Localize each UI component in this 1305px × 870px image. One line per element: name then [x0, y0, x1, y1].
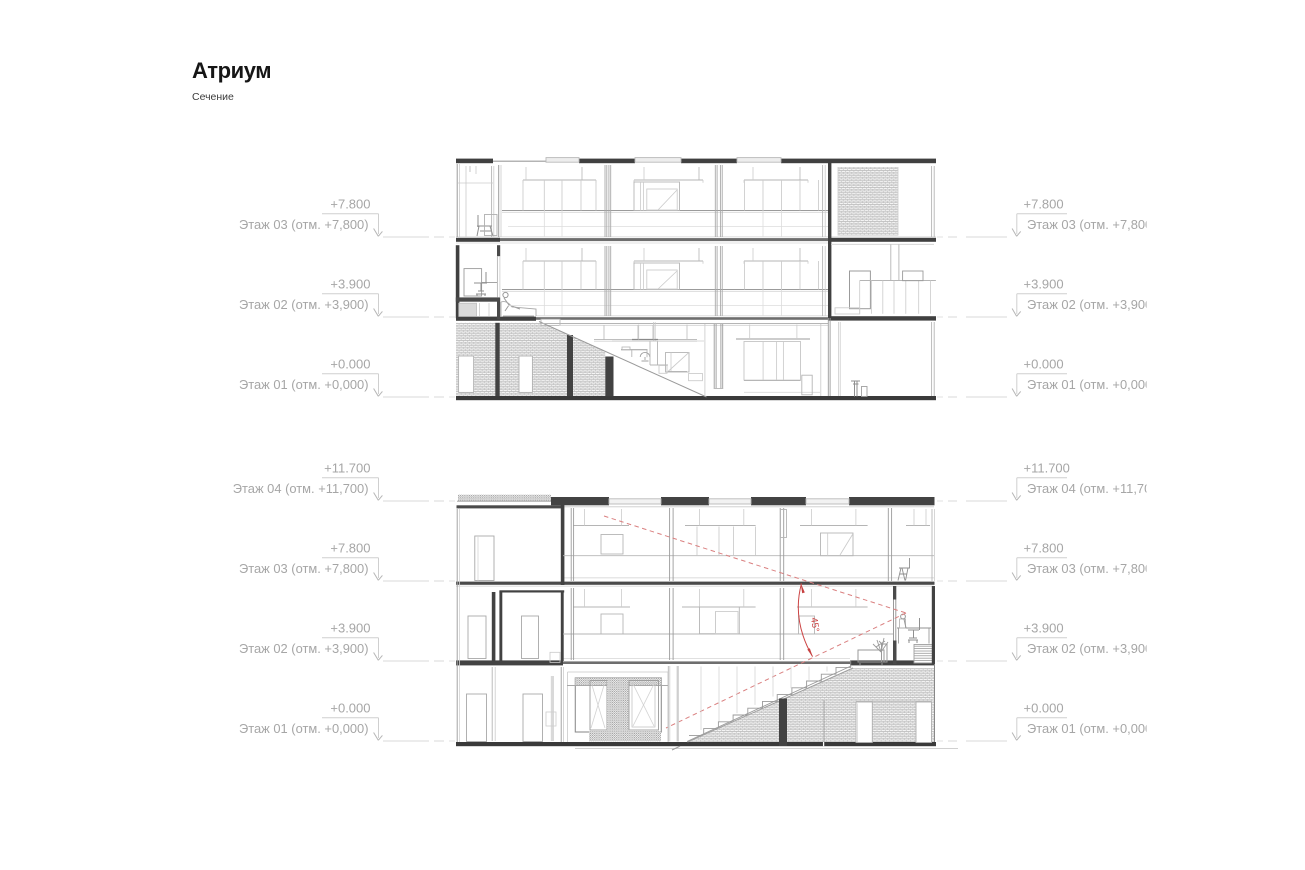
svg-text:+11.700: +11.700	[324, 461, 370, 476]
svg-text:Этаж 01 (отм. +0,000): Этаж 01 (отм. +0,000)	[239, 721, 369, 736]
svg-text:+0.000: +0.000	[1024, 701, 1064, 716]
svg-text:Этаж 03 (отм. +7,800): Этаж 03 (отм. +7,800)	[1027, 561, 1157, 576]
svg-text:+7.800: +7.800	[330, 541, 370, 556]
svg-text:Этаж 03 (отм. +7,800): Этаж 03 (отм. +7,800)	[239, 217, 369, 232]
svg-text:45°: 45°	[808, 617, 821, 633]
svg-text:+11.700: +11.700	[1024, 461, 1070, 476]
svg-text:Этаж 02 (отм. +3,900): Этаж 02 (отм. +3,900)	[1027, 297, 1157, 312]
svg-text:Этаж 01 (отм. +0,000): Этаж 01 (отм. +0,000)	[1027, 377, 1157, 392]
svg-text:+7.800: +7.800	[1024, 197, 1064, 212]
svg-text:Этаж 02 (отм. +3,900): Этаж 02 (отм. +3,900)	[1027, 641, 1157, 656]
svg-text:+0.000: +0.000	[1024, 357, 1064, 372]
svg-text:+3.900: +3.900	[1024, 277, 1064, 292]
svg-text:+0.000: +0.000	[330, 357, 370, 372]
svg-text:Этаж 03 (отм. +7,800): Этаж 03 (отм. +7,800)	[239, 561, 369, 576]
svg-text:+3.900: +3.900	[1024, 621, 1064, 636]
svg-text:+3.900: +3.900	[330, 277, 370, 292]
svg-text:Этаж 02 (отм. +3,900): Этаж 02 (отм. +3,900)	[239, 297, 369, 312]
svg-text:Этаж 04 (отм. +11,700): Этаж 04 (отм. +11,700)	[1027, 481, 1163, 496]
svg-text:Этаж 03 (отм. +7,800): Этаж 03 (отм. +7,800)	[1027, 217, 1157, 232]
svg-text:Этаж 01 (отм. +0,000): Этаж 01 (отм. +0,000)	[1027, 721, 1157, 736]
svg-text:Этаж 02 (отм. +3,900): Этаж 02 (отм. +3,900)	[239, 641, 369, 656]
svg-text:+0.000: +0.000	[330, 701, 370, 716]
svg-text:Этаж 04 (отм. +11,700): Этаж 04 (отм. +11,700)	[233, 481, 369, 496]
svg-text:+7.800: +7.800	[1024, 541, 1064, 556]
svg-text:+3.900: +3.900	[330, 621, 370, 636]
svg-text:Этаж 01 (отм. +0,000): Этаж 01 (отм. +0,000)	[239, 377, 369, 392]
svg-text:+7.800: +7.800	[330, 197, 370, 212]
